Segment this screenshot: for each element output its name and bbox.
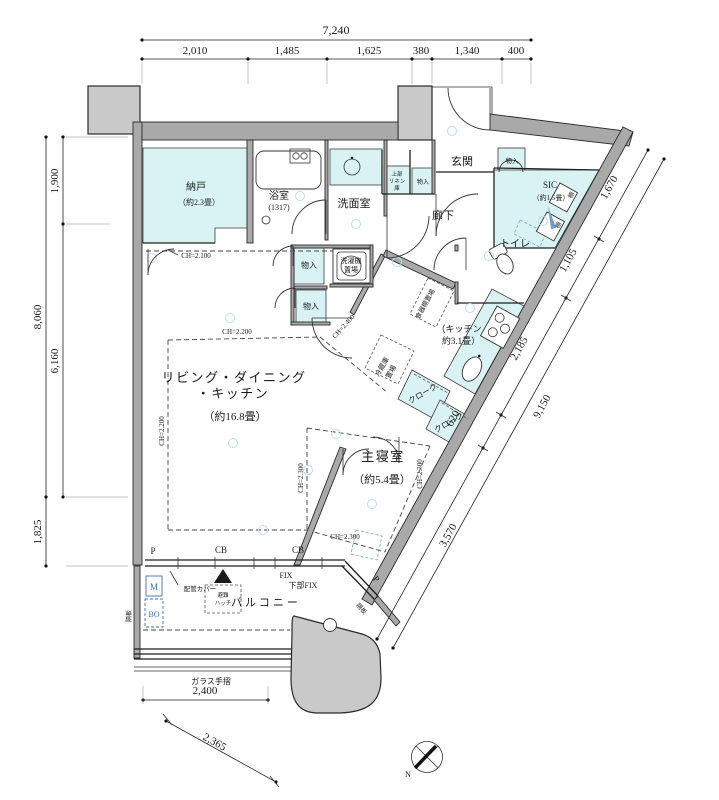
bathtub <box>256 151 321 189</box>
mark-north: N <box>405 770 411 779</box>
dim-diag-total: 9,150 <box>531 392 554 420</box>
mark-meter: M <box>150 582 158 592</box>
dim-balcony-diag: 2,365 <box>201 731 229 754</box>
floor-plan-drawing: 7,240 2,010 1,485 1,625 380 1,340 400 8,… <box>0 0 719 800</box>
dim-top-total: 7,240 <box>323 23 350 37</box>
mark-partition-left: 隔板 <box>125 610 133 622</box>
left-wall <box>133 122 142 565</box>
dim-top-6: 400 <box>508 45 525 57</box>
label-ldk-size: （約16.8畳） <box>203 409 266 423</box>
label-washer-2: 置場 <box>344 265 358 274</box>
label-washer-1: 洗濯機 <box>341 256 362 265</box>
label-hallway: 廊下 <box>432 208 454 222</box>
bath-door <box>292 200 326 234</box>
label-bedroom: 主寝室 <box>361 449 405 464</box>
compass-needle <box>415 746 436 768</box>
label-kitchen-1: （キッチン <box>436 324 481 334</box>
mark-partition-right: 隔板 <box>354 602 368 616</box>
ch-hall: CH=2.400 <box>331 313 357 341</box>
label-closet-2: 物入 <box>303 301 319 311</box>
dim-left-inner-upper: 1,900 <box>49 168 61 193</box>
ch-bedroom-left: CH=2.300 <box>297 463 305 493</box>
dim-top-4: 380 <box>413 45 430 57</box>
mark-bo: BO <box>148 610 159 619</box>
dim-balcony-width: 2,400 <box>193 685 218 697</box>
ch-ldk-top: CH=2.200 <box>222 328 252 336</box>
top-wall <box>140 122 398 140</box>
label-closet-3: 物入 <box>417 178 429 186</box>
label-cupboard: 食器棚置場 <box>413 287 437 320</box>
label-storage-room: 納戸 <box>186 180 206 193</box>
hall-closet-door-1 <box>273 246 293 266</box>
toilet-door <box>434 238 466 270</box>
label-bedroom-size: （約5.4畳） <box>353 472 411 486</box>
label-bath-size: (1317) <box>268 203 290 212</box>
label-ldk-2: ・キッチン <box>197 386 270 401</box>
label-ldk-1: リビング・ダイニング <box>161 370 306 385</box>
structure-notch <box>324 619 337 632</box>
dim-top-5: 1,340 <box>455 45 480 57</box>
label-sic: SIC <box>543 180 557 190</box>
mark-hatch-1: 避難 <box>217 591 229 599</box>
structure-round-block <box>291 616 381 713</box>
label-bath: 浴室 <box>269 189 289 202</box>
ch-bedroom-right: CH=2.300 <box>416 459 424 489</box>
top-right-wall <box>490 114 633 146</box>
dim-left-outer-upper: 8,060 <box>32 304 44 329</box>
vanity-counter <box>330 149 382 185</box>
storage-room-door <box>148 249 174 275</box>
floor-plan-page: 7,240 2,010 1,485 1,625 380 1,340 400 8,… <box>0 0 719 800</box>
label-closet-genkan: 物入 <box>506 156 520 165</box>
dim-diag-5: 3,570 <box>437 521 460 549</box>
mark-p-left: P <box>150 546 155 556</box>
mark-hatch-2: ハッチ <box>215 600 232 607</box>
storage-room-area <box>143 148 247 243</box>
shaft-block-left <box>88 86 140 134</box>
mark-fix-lower: 下部FIX <box>289 580 318 590</box>
top-ticks <box>140 57 532 84</box>
ch-storage-room: CH=2.100 <box>181 252 211 260</box>
mark-cb-2: CB <box>292 545 304 555</box>
mark-glass-rail: ガラス手摺 <box>191 676 231 686</box>
entrance-door <box>448 88 490 130</box>
dim-left-inner-lower: 6,160 <box>49 348 61 373</box>
label-toilet: トイレ <box>500 239 530 250</box>
label-linen-2: リネン <box>389 178 406 185</box>
balcony-and-windows <box>134 557 400 713</box>
ch-bedroom-bottom: CH=2.300 <box>330 533 360 541</box>
label-storage-room-size: （約2.3畳） <box>178 197 220 207</box>
evacuation-hatch-icon <box>214 569 232 583</box>
dim-top-1: 2,010 <box>183 45 208 57</box>
label-kitchen-2: 約3.1畳） <box>442 335 480 346</box>
label-washroom: 洗面室 <box>338 196 371 210</box>
ch-ldk-left: CH=2.200 <box>158 416 166 446</box>
label-sic-size: （約1.5畳） <box>533 193 570 202</box>
label-linen-1: 上部 <box>391 170 403 178</box>
shaft-block-mid <box>398 86 432 140</box>
dim-left-outer-lower: 1,825 <box>32 519 44 544</box>
label-linen-3: 庫 <box>394 184 400 192</box>
dim-top-3: 1,625 <box>357 45 382 57</box>
label-closet-1: 物入 <box>301 260 317 270</box>
mark-cb-1: CB <box>215 545 227 555</box>
washroom-door <box>387 216 429 258</box>
mark-fix: FIX <box>280 571 293 580</box>
dim-top-2: 1,485 <box>275 45 300 57</box>
mark-pipe-cover: 配管カバー <box>184 584 217 593</box>
bath-drain <box>262 216 270 224</box>
label-genkan: 玄関 <box>451 154 473 168</box>
compass <box>412 742 443 773</box>
label-balcony: バルコニー <box>231 596 301 609</box>
